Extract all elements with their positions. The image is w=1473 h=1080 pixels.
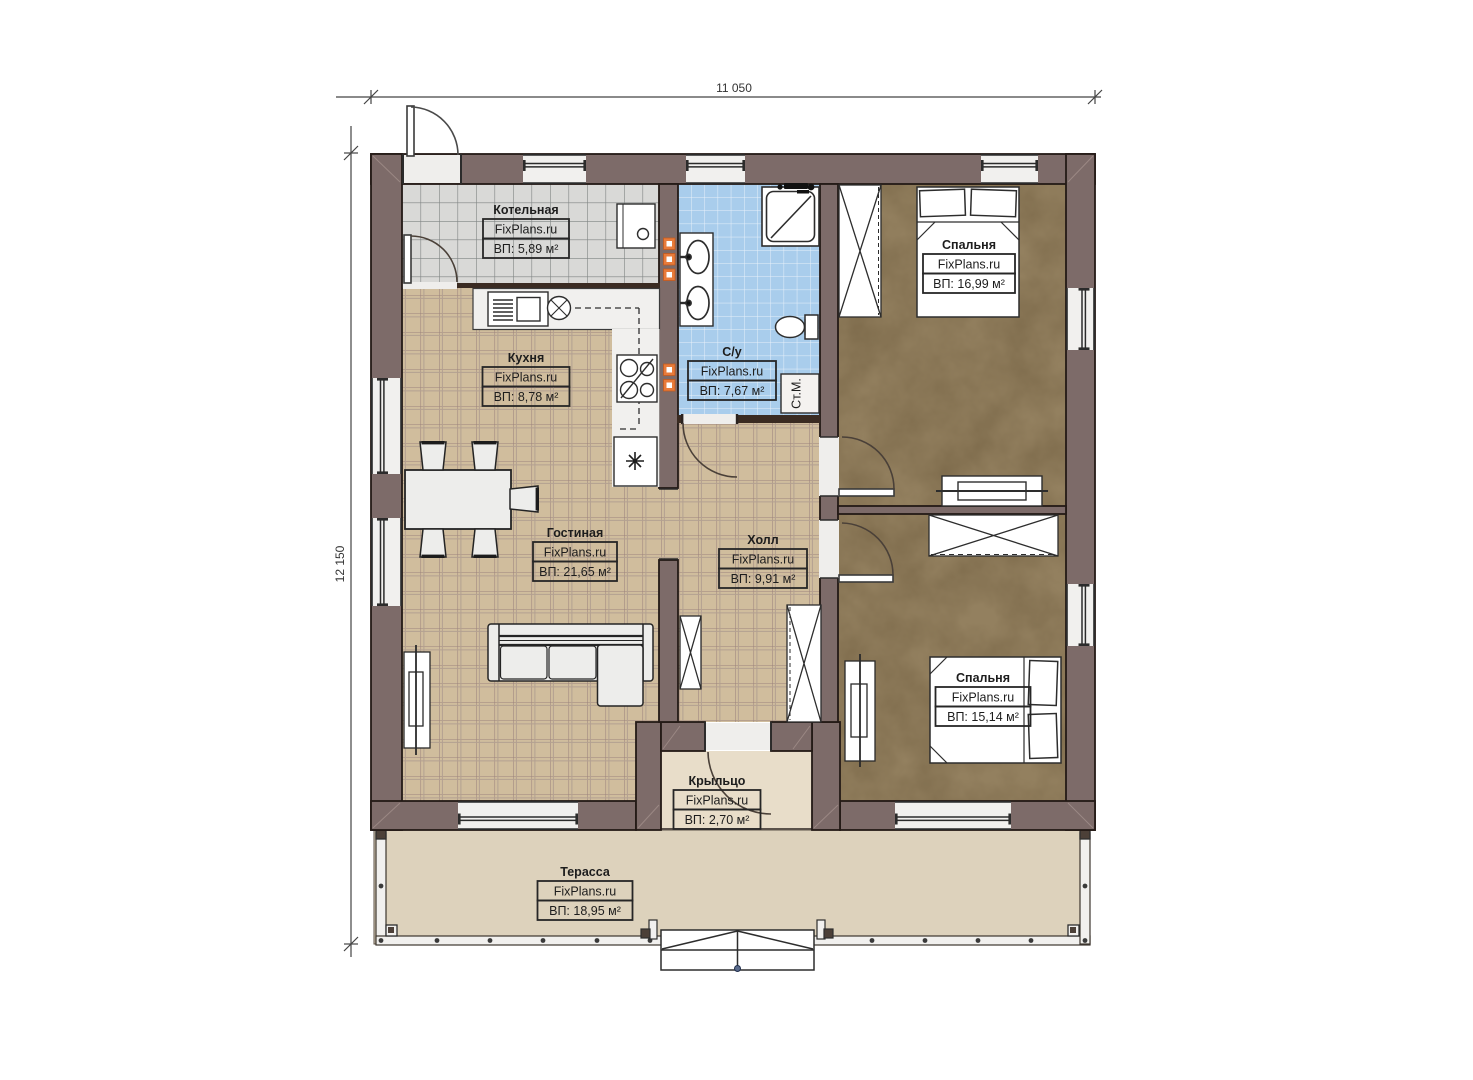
svg-text:FixPlans.ru: FixPlans.ru — [732, 553, 795, 567]
svg-text:Крыльцо: Крыльцо — [689, 774, 746, 788]
svg-text:FixPlans.ru: FixPlans.ru — [495, 223, 558, 237]
svg-text:ВП: 16,99 м²: ВП: 16,99 м² — [933, 277, 1005, 291]
svg-text:FixPlans.ru: FixPlans.ru — [544, 546, 607, 560]
svg-text:FixPlans.ru: FixPlans.ru — [952, 691, 1015, 705]
svg-text:Терасса: Терасса — [560, 865, 611, 879]
svg-text:FixPlans.ru: FixPlans.ru — [701, 365, 764, 379]
svg-text:ВП: 2,70 м²: ВП: 2,70 м² — [685, 813, 750, 827]
svg-text:FixPlans.ru: FixPlans.ru — [686, 794, 749, 808]
svg-text:Спальня: Спальня — [956, 671, 1010, 685]
svg-text:ВП: 18,95 м²: ВП: 18,95 м² — [549, 904, 621, 918]
svg-text:ВП: 21,65 м²: ВП: 21,65 м² — [539, 565, 611, 579]
svg-text:Кухня: Кухня — [508, 351, 545, 365]
svg-text:FixPlans.ru: FixPlans.ru — [554, 885, 617, 899]
svg-text:Спальня: Спальня — [942, 238, 996, 252]
svg-text:ВП: 9,91 м²: ВП: 9,91 м² — [731, 572, 796, 586]
svg-text:Гостиная: Гостиная — [547, 526, 604, 540]
svg-text:ВП: 5,89 м²: ВП: 5,89 м² — [494, 242, 559, 256]
svg-text:11 050: 11 050 — [716, 81, 752, 95]
svg-text:FixPlans.ru: FixPlans.ru — [938, 258, 1001, 272]
svg-text:С/у: С/у — [722, 345, 742, 359]
svg-text:Ст.М.: Ст.М. — [790, 378, 804, 409]
svg-text:Холл: Холл — [747, 533, 778, 547]
svg-text:ВП: 8,78 м²: ВП: 8,78 м² — [494, 390, 559, 404]
svg-text:ВП: 7,67 м²: ВП: 7,67 м² — [700, 384, 765, 398]
svg-text:FixPlans.ru: FixPlans.ru — [495, 371, 558, 385]
svg-text:Котельная: Котельная — [493, 203, 558, 217]
svg-text:ВП: 15,14 м²: ВП: 15,14 м² — [947, 710, 1019, 724]
svg-text:12 150: 12 150 — [333, 545, 347, 582]
